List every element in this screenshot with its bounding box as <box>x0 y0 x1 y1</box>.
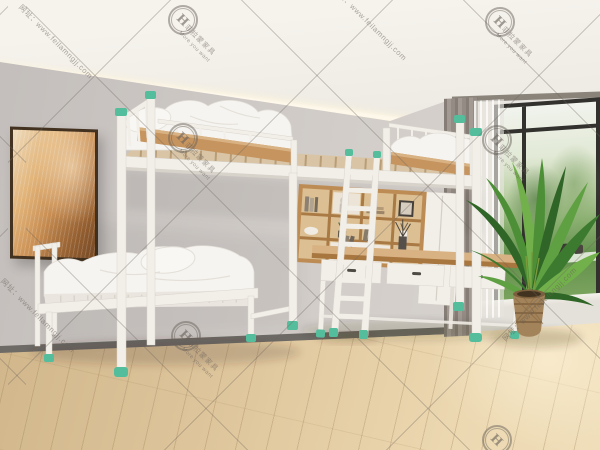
support-post <box>456 120 464 310</box>
furniture-layer <box>0 0 600 450</box>
support-post <box>147 95 155 345</box>
bed-end-board <box>383 128 390 176</box>
drawer-handle <box>347 269 356 272</box>
support-post <box>117 113 126 375</box>
headboard-bar <box>35 246 40 346</box>
potted-plant <box>466 158 600 337</box>
green-top-cap <box>470 128 482 136</box>
green-foot-cap <box>114 367 128 377</box>
green-top-cap <box>145 91 156 99</box>
green-foot-cap <box>453 302 464 311</box>
green-foot-cap <box>287 321 298 330</box>
drawer-handle <box>412 272 421 275</box>
green-foot-cap <box>359 330 368 339</box>
green-foot-cap <box>44 354 54 362</box>
green-top-cap <box>115 108 127 116</box>
support-post <box>289 173 297 329</box>
green-foot-cap <box>469 333 482 342</box>
green-top-cap <box>373 151 381 158</box>
green-top-cap <box>345 149 353 156</box>
support-post <box>472 133 481 341</box>
scene: H 菲拉蒙家具More you want H 菲拉蒙家具More you wan… <box>0 0 600 450</box>
bed-leg <box>46 312 52 358</box>
green-foot-cap <box>329 328 338 337</box>
green-top-cap <box>454 115 465 123</box>
green-foot-cap <box>316 329 325 337</box>
bed-divider-board <box>291 140 297 174</box>
green-foot-cap <box>246 334 256 342</box>
